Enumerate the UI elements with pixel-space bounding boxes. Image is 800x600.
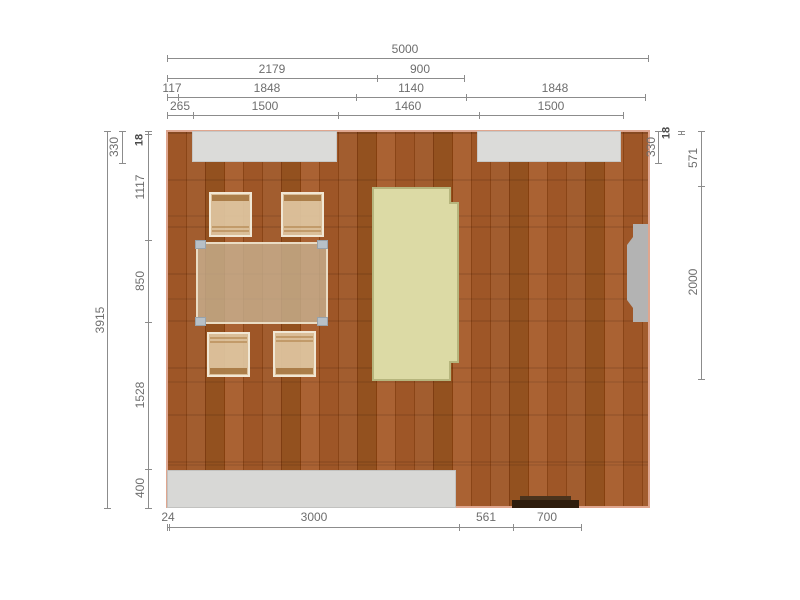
dim-label-1117: 1117 (134, 175, 146, 200)
dim-tick (145, 508, 152, 509)
dim-tick (648, 55, 649, 62)
bottom-counter[interactable] (167, 470, 456, 508)
chair-rail (284, 226, 321, 228)
right-wall-door[interactable] (625, 222, 651, 324)
chair-top-left[interactable] (209, 192, 252, 237)
dim-line-right-330 (658, 131, 659, 163)
dim-tick (356, 94, 357, 101)
dim-tick (145, 240, 152, 241)
yellow-cabinet[interactable] (371, 186, 461, 383)
dim-label-265: 265 (170, 100, 190, 112)
dim-label-3000: 3000 (301, 511, 328, 523)
dim-tick (459, 524, 460, 531)
dim-tick (145, 131, 152, 132)
dim-tick (104, 508, 111, 509)
dim-label-1500: 1500 (252, 100, 279, 112)
dim-tick (167, 524, 168, 531)
chair-rail (276, 340, 313, 342)
dim-tick (145, 469, 152, 470)
dim-tick (479, 112, 480, 119)
dim-line-left-overall (107, 131, 108, 508)
dim-label-1500: 1500 (538, 100, 565, 112)
dim-label-18: 18 (135, 134, 146, 146)
dining-table[interactable] (196, 242, 328, 324)
chair-backrest (276, 368, 313, 374)
dim-tick (466, 94, 467, 101)
dim-label-2000: 2000 (687, 269, 699, 296)
dim-tick (145, 134, 152, 135)
dim-label-571: 571 (687, 148, 699, 168)
dim-label-850: 850 (134, 271, 146, 291)
dim-tick (104, 131, 111, 132)
yellow-cabinet-shape (373, 188, 458, 380)
dim-line-top-row4 (167, 115, 623, 116)
table-leg (317, 317, 328, 326)
dim-tick (193, 112, 194, 119)
dim-tick (377, 75, 378, 82)
table-leg (195, 240, 206, 249)
dim-label-900: 900 (410, 63, 430, 75)
dim-tick (698, 186, 705, 187)
chair-backrest (284, 195, 321, 201)
dim-line-top-row2 (167, 78, 464, 79)
dim-line-bottom (167, 527, 581, 528)
window-top-left[interactable] (192, 131, 337, 162)
dim-tick (338, 112, 339, 119)
window-top-right[interactable] (477, 131, 621, 162)
door-shape (627, 224, 648, 322)
dim-tick (645, 94, 646, 101)
floor-plan-canvas: 5000217990011718481140184826515001460150… (0, 0, 800, 600)
chair-rail (212, 226, 249, 228)
dim-tick (698, 131, 705, 132)
dim-label-1528: 1528 (134, 382, 146, 409)
dim-tick (513, 524, 514, 531)
dim-label-330: 330 (108, 137, 120, 157)
chair-rail (212, 230, 249, 232)
dim-line-top-overall (167, 58, 648, 59)
dim-label-18: 18 (662, 127, 673, 139)
dim-tick (623, 112, 624, 119)
dim-label-1460: 1460 (395, 100, 422, 112)
dim-line-top-row3 (167, 97, 645, 98)
dim-tick (167, 55, 168, 62)
dim-label-1848: 1848 (542, 82, 569, 94)
dim-label-1848: 1848 (254, 82, 281, 94)
dim-tick (167, 94, 168, 101)
chair-backrest (210, 368, 247, 374)
dim-tick (169, 524, 170, 531)
dim-label-2179: 2179 (259, 63, 286, 75)
dim-label-24: 24 (161, 511, 174, 523)
dim-tick (581, 524, 582, 531)
chair-rail (210, 337, 247, 339)
chair-bottom-left[interactable] (207, 332, 250, 377)
dim-tick (464, 75, 465, 82)
dim-tick (119, 163, 126, 164)
dim-tick (119, 131, 126, 132)
chair-backrest (212, 195, 249, 201)
dim-label-1140: 1140 (398, 82, 424, 94)
dim-label-330: 330 (645, 137, 657, 157)
radiator[interactable] (512, 496, 579, 508)
dim-label-400: 400 (134, 478, 146, 498)
dim-line-left-inner (148, 131, 149, 508)
dim-tick (698, 379, 705, 380)
chair-bottom-right[interactable] (273, 331, 316, 377)
chair-rail (276, 336, 313, 338)
dim-label-117: 117 (162, 82, 181, 94)
chair-top-right[interactable] (281, 192, 324, 237)
table-leg (317, 240, 328, 249)
radiator-body (512, 500, 579, 508)
dim-tick (655, 163, 662, 164)
dim-line-right-inner (701, 131, 702, 379)
dim-label-700: 700 (537, 511, 557, 523)
dim-tick (145, 322, 152, 323)
chair-rail (210, 341, 247, 343)
dim-tick (167, 112, 168, 119)
dim-label-561: 561 (476, 511, 496, 523)
dim-tick (678, 131, 685, 132)
dim-tick (678, 134, 685, 135)
chair-rail (284, 230, 321, 232)
dim-label-5000: 5000 (392, 43, 419, 55)
dim-line-left-330 (122, 131, 123, 163)
table-leg (195, 317, 206, 326)
dim-label-3915: 3915 (94, 307, 106, 334)
